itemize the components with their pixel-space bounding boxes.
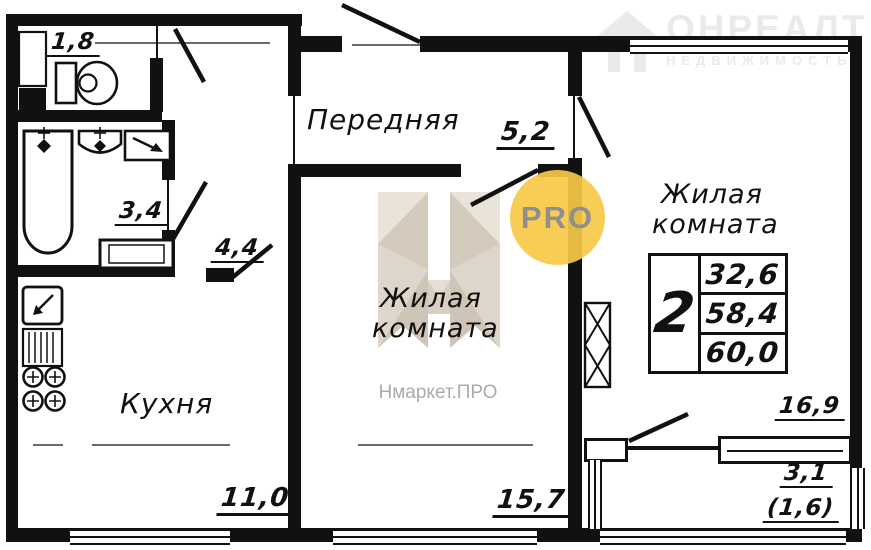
area-hallway: 5,2 bbox=[496, 118, 557, 150]
spec-usable-area-row: 58,4 bbox=[701, 295, 785, 334]
sink-icon bbox=[79, 127, 121, 153]
nmarket-watermark-text: Нмаркет.ПРО bbox=[360, 382, 516, 404]
toilet-icon bbox=[56, 62, 117, 104]
spec-living-area-row: 32,6 bbox=[701, 256, 785, 295]
entrance-door-leaf bbox=[342, 5, 420, 42]
pro-badge: PRO bbox=[510, 170, 605, 265]
wc-door-leaf bbox=[175, 29, 204, 82]
room-label-living-center: Жилая комната bbox=[372, 284, 490, 344]
dish-rack-icon bbox=[23, 329, 62, 366]
area-corridor: 4,4 bbox=[211, 236, 267, 263]
area-balcony-coefficient: (1,6) bbox=[763, 496, 842, 523]
area-living-right: 16,9 bbox=[775, 394, 848, 421]
living-right-door-leaf bbox=[579, 97, 609, 157]
vanity-cabinet-icon bbox=[100, 240, 173, 268]
spec-table: 2 32,6 58,4 60,0 bbox=[648, 253, 788, 374]
room-label-hallway: Передняя bbox=[307, 104, 460, 135]
bathtub-icon bbox=[24, 127, 72, 253]
room-label-kitchen: Кухня bbox=[120, 388, 213, 419]
area-balcony: 3,1 bbox=[780, 461, 836, 488]
bathroom-door-leaf bbox=[173, 182, 206, 239]
room-label-living-right: Жилая комната bbox=[652, 180, 772, 240]
spec-total-area: 60,0 bbox=[705, 336, 782, 369]
stove-icon bbox=[24, 368, 65, 411]
floor-plan: ОНРЕАЛТ НЕДВИЖИМОСТЬ bbox=[0, 0, 871, 550]
area-living-center: 15,7 bbox=[492, 486, 572, 518]
balcony-door-leaf bbox=[629, 414, 688, 441]
washing-machine-icon bbox=[125, 131, 170, 160]
spec-rooms-count: 2 bbox=[650, 281, 698, 346]
area-bathroom: 3,4 bbox=[115, 199, 171, 226]
vent-shaft-icon bbox=[585, 303, 610, 387]
kitchen-sink-icon bbox=[23, 287, 62, 324]
spec-rooms-count-cell: 2 bbox=[651, 256, 701, 371]
pro-badge-label: PRO bbox=[521, 200, 594, 236]
area-wc: 1,8 bbox=[47, 30, 103, 57]
spec-living-area: 32,6 bbox=[705, 258, 782, 291]
duct-shaft-icon bbox=[19, 32, 46, 110]
spec-total-area-row: 60,0 bbox=[701, 335, 785, 371]
area-kitchen: 11,0 bbox=[216, 484, 296, 516]
spec-usable-area: 58,4 bbox=[705, 297, 782, 330]
